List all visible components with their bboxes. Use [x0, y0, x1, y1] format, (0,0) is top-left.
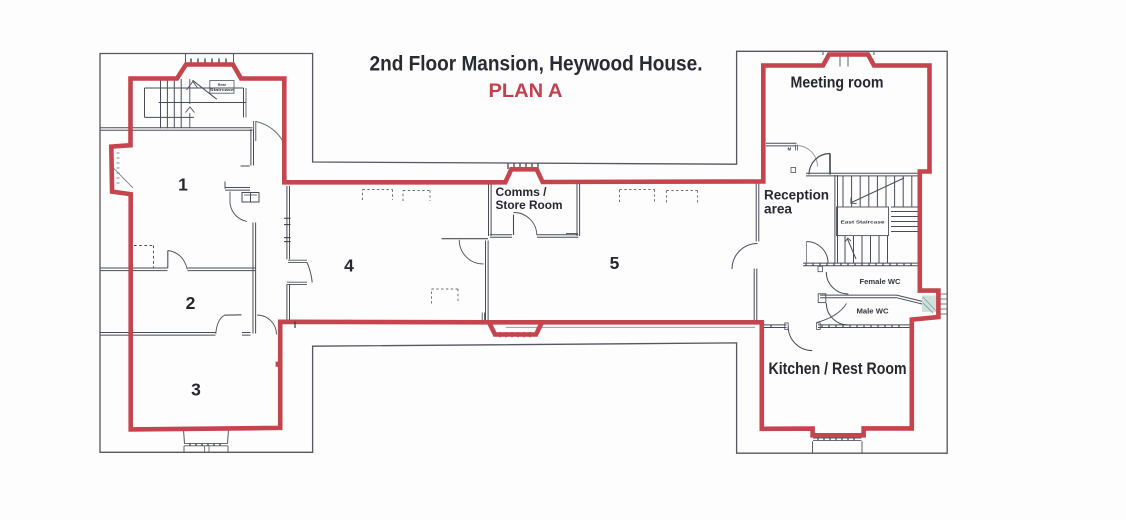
svg-text:Staircase: Staircase: [210, 88, 234, 92]
svg-text:4: 4: [344, 256, 354, 276]
svg-text:1: 1: [178, 175, 188, 195]
svg-text:3: 3: [191, 380, 201, 400]
svg-text:Reception: Reception: [764, 188, 829, 203]
svg-text:area: area: [764, 202, 792, 217]
svg-text:Male WC: Male WC: [857, 307, 889, 316]
svg-text:M: M: [788, 147, 792, 152]
svg-text:2: 2: [186, 293, 196, 313]
svg-text:Comms /: Comms /: [496, 187, 548, 199]
svg-text:Rear: Rear: [218, 83, 227, 87]
svg-text:Female WC: Female WC: [860, 277, 901, 286]
svg-text:2nd Floor Mansion, Heywood Hou: 2nd Floor Mansion, Heywood House.: [370, 52, 703, 76]
svg-text:Store Room: Store Room: [496, 200, 563, 212]
svg-text:PLAN A: PLAN A: [489, 81, 563, 102]
svg-text:East Staircase: East Staircase: [841, 220, 886, 225]
svg-text:Meeting room: Meeting room: [791, 75, 884, 92]
svg-text:Kitchen / Rest Room: Kitchen / Rest Room: [769, 360, 907, 378]
svg-text:5: 5: [610, 253, 620, 273]
